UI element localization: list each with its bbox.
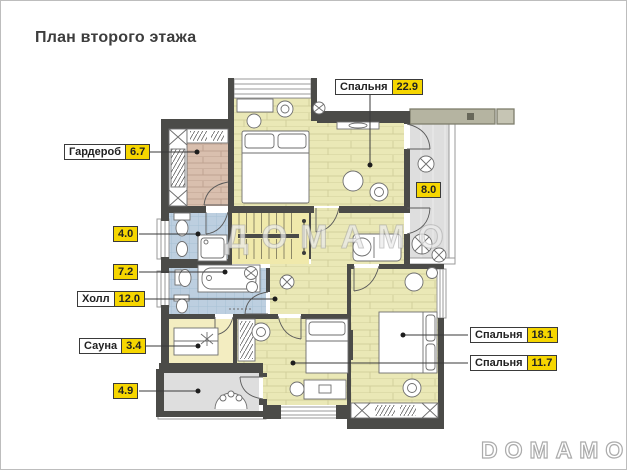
roof-overhang [410,109,514,124]
floor-plan-page: ДОМАМО План второго этажа Спальня22.9 Га… [0,0,627,470]
label-balcony-right: 8.0 [416,182,441,198]
bedroom-18-window [437,269,446,318]
hall-corridor-floor [270,264,347,314]
balcony-right-railing [449,121,455,262]
bathroom-window [157,271,169,307]
desk-22 [237,99,273,112]
label-balcony-bottom: 4.9 [113,383,138,399]
chair-11 [290,382,304,396]
bedroom-11-window [279,407,338,418]
label-bedroom-11-area: 11.7 [528,355,558,371]
toilet2 [177,299,188,313]
toilet-tank [174,213,190,220]
domamo-logo: DOMAMO [481,437,627,464]
label-bedroom-18-name: Спальня [470,327,528,343]
label-bedroom-11-name: Спальня [470,355,528,371]
label-wardrobe-name: Гардероб [64,144,126,160]
bidet [177,242,188,257]
label-wardrobe-area: 6.7 [126,144,150,160]
label-bedroom-18: Спальня18.1 [470,327,558,343]
label-wc: 4.0 [113,226,138,242]
wc-window [157,219,169,259]
label-wardrobe: Гардероб6.7 [64,144,150,160]
label-wc-area: 4.0 [113,226,138,242]
label-bathroom-area: 7.2 [113,264,138,280]
plant-18 [427,268,438,279]
floor-plan-drawing [1,1,627,470]
armchair-22 [343,171,363,191]
label-balcony-right-area: 8.0 [416,182,441,198]
label-hall: Холл12.0 [77,291,145,307]
label-balcony-bottom-area: 4.9 [113,383,138,399]
armchair-18 [405,273,423,291]
label-bedroom-22: Спальня22.9 [335,79,423,95]
label-bathroom: 7.2 [113,264,138,280]
label-hall-area: 12.0 [115,291,145,307]
balcony-right-railing-bottom [407,258,455,264]
label-sauna-area: 3.4 [122,338,146,354]
label-bedroom-22-area: 22.9 [393,79,423,95]
label-bedroom-11: Спальня11.7 [470,355,557,371]
chair-22 [247,114,261,128]
stairs-floor [232,213,309,264]
label-sauna-name: Сауна [79,338,122,354]
basket [247,282,258,293]
page-title: План второго этажа [35,29,196,47]
label-bedroom-18-area: 18.1 [528,327,558,343]
label-sauna: Сауна3.4 [79,338,146,354]
label-bedroom-22-name: Спальня [335,79,393,95]
label-hall-name: Холл [77,291,115,307]
sauna-bench [174,328,218,355]
